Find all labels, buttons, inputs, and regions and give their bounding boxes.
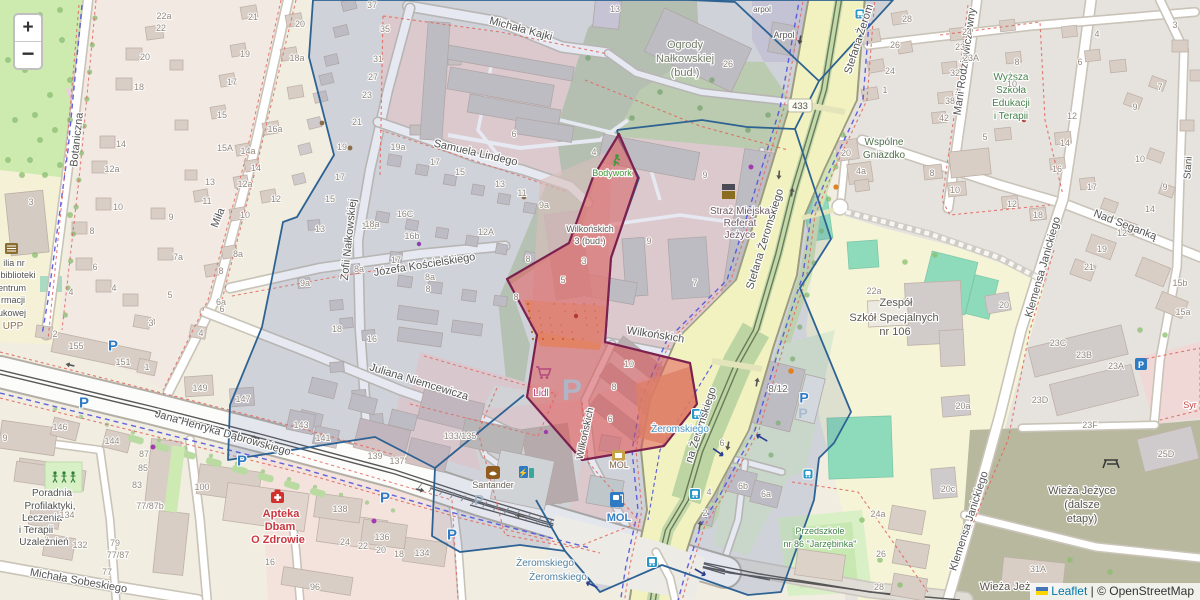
svg-text:UPP: UPP [3, 321, 24, 332]
svg-text:134: 134 [414, 548, 429, 558]
svg-text:15: 15 [325, 194, 335, 204]
svg-text:i Terapii: i Terapii [19, 525, 53, 536]
svg-text:17: 17 [391, 255, 401, 265]
svg-text:15: 15 [217, 110, 227, 120]
svg-text:11: 11 [202, 196, 211, 206]
svg-text:3: 3 [28, 197, 33, 207]
svg-text:16b: 16b [404, 231, 419, 241]
svg-text:32: 32 [950, 68, 960, 78]
svg-text:5: 5 [982, 132, 987, 142]
svg-text:4: 4 [1094, 29, 1099, 39]
svg-text:31A: 31A [1030, 564, 1046, 574]
svg-text:MOL: MOL [607, 512, 632, 524]
svg-text:9a: 9a [539, 200, 549, 210]
svg-text:3: 3 [1172, 20, 1177, 30]
svg-text:Wspólne: Wspólne [865, 137, 904, 148]
svg-text:22a: 22a [866, 286, 881, 296]
svg-text:26: 26 [876, 549, 886, 559]
svg-text:17: 17 [1087, 182, 1097, 192]
svg-text:26: 26 [890, 40, 900, 50]
svg-text:6: 6 [511, 129, 516, 139]
svg-text:Lidl: Lidl [533, 388, 549, 399]
svg-text:Apteka: Apteka [263, 508, 301, 520]
svg-text:85: 85 [138, 463, 148, 473]
svg-text:77: 77 [102, 567, 112, 577]
svg-text:14: 14 [1060, 138, 1070, 148]
svg-text:83: 83 [132, 480, 142, 490]
svg-text:Ogrody: Ogrody [667, 39, 704, 51]
svg-text:22a: 22a [156, 11, 171, 21]
svg-text:10: 10 [1007, 79, 1017, 89]
svg-text:23C: 23C [1050, 338, 1067, 348]
svg-text:22: 22 [358, 541, 368, 551]
svg-text:18: 18 [134, 82, 144, 92]
svg-text:20: 20 [841, 148, 851, 158]
svg-text:9a: 9a [300, 278, 310, 288]
svg-text:8a: 8a [425, 272, 435, 282]
svg-text:Wilkońskich: Wilkońskich [566, 224, 614, 234]
svg-text:Syr: Syr [1183, 400, 1197, 410]
svg-text:26: 26 [723, 59, 733, 69]
svg-text:8: 8 [513, 292, 518, 302]
svg-text:139: 139 [367, 451, 382, 461]
svg-text:9: 9 [1162, 182, 1167, 192]
svg-text:23F: 23F [1082, 420, 1098, 430]
svg-text:Straż Miejska: Straż Miejska [710, 206, 770, 217]
svg-text:P: P [79, 395, 89, 412]
svg-text:20: 20 [140, 52, 150, 62]
svg-text:20a: 20a [955, 401, 970, 411]
svg-text:Zespół: Zespół [879, 297, 913, 309]
svg-text:(dalsze: (dalsze [1064, 499, 1099, 511]
svg-text:8: 8 [425, 284, 430, 294]
svg-text:biblioteki: biblioteki [0, 270, 35, 280]
svg-text:nr 106: nr 106 [879, 326, 910, 338]
svg-text:18a: 18a [364, 219, 379, 229]
svg-text:10: 10 [950, 185, 960, 195]
svg-text:15b: 15b [1172, 278, 1187, 288]
svg-text:77/87b: 77/87b [136, 501, 164, 511]
svg-text:141: 141 [315, 433, 330, 443]
svg-text:15A: 15A [217, 143, 233, 153]
svg-text:13: 13 [205, 177, 215, 187]
svg-text:23B: 23B [1076, 350, 1092, 360]
svg-text:15a: 15a [1175, 307, 1190, 317]
svg-text:12a: 12a [237, 179, 252, 189]
svg-text:143: 143 [293, 420, 308, 430]
svg-text:Leczenia: Leczenia [22, 513, 62, 524]
svg-text:10: 10 [240, 210, 250, 220]
svg-text:Wieża Jeżyce: Wieża Jeżyce [1048, 485, 1116, 497]
svg-text:6b: 6b [738, 481, 748, 491]
svg-text:21: 21 [1084, 262, 1094, 272]
svg-text:134: 134 [59, 510, 74, 520]
svg-text:3: 3 [581, 256, 586, 266]
svg-text:Przedszkole: Przedszkole [795, 526, 844, 536]
svg-text:P: P [1138, 360, 1144, 370]
svg-text:15: 15 [455, 167, 465, 177]
svg-text:Bodywork: Bodywork [592, 168, 632, 178]
svg-text:136: 136 [374, 532, 389, 542]
svg-text:17: 17 [227, 77, 237, 87]
svg-text:6a: 6a [761, 489, 771, 499]
svg-text:21: 21 [248, 12, 258, 22]
svg-text:28: 28 [874, 582, 884, 592]
svg-text:9: 9 [168, 212, 173, 222]
svg-text:16C: 16C [397, 209, 414, 219]
svg-text:⚡: ⚡ [518, 468, 528, 478]
svg-text:151: 151 [115, 357, 130, 367]
svg-text:Santander: Santander [472, 480, 514, 490]
svg-text:146: 146 [52, 422, 67, 432]
svg-text:155: 155 [68, 341, 83, 351]
svg-text:27: 27 [368, 72, 378, 82]
svg-text:P: P [237, 453, 247, 470]
svg-text:38: 38 [945, 96, 955, 106]
svg-text:12: 12 [1067, 111, 1077, 121]
svg-text:138: 138 [332, 504, 347, 514]
svg-text:rmacji: rmacji [1, 295, 25, 305]
svg-text:13: 13 [315, 224, 325, 234]
svg-text:147: 147 [235, 394, 250, 404]
svg-text:19: 19 [240, 49, 250, 59]
svg-text:11: 11 [517, 188, 526, 198]
svg-text:14: 14 [1145, 204, 1155, 214]
svg-text:6: 6 [219, 304, 224, 314]
svg-text:5: 5 [560, 275, 565, 285]
svg-text:18: 18 [332, 324, 342, 334]
svg-text:18: 18 [394, 549, 404, 559]
svg-text:6: 6 [719, 438, 724, 448]
svg-text:ilia nr: ilia nr [3, 258, 25, 268]
svg-text:12A: 12A [478, 227, 494, 237]
svg-text:Żeromskiego: Żeromskiego [516, 556, 574, 569]
svg-text:4: 4 [706, 487, 711, 497]
svg-text:5: 5 [167, 290, 172, 300]
svg-text:8: 8 [1014, 57, 1019, 67]
svg-text:20: 20 [376, 545, 386, 555]
svg-text:18: 18 [1033, 210, 1043, 220]
svg-text:nr 86 "Jarzębinka": nr 86 "Jarzębinka" [784, 539, 857, 549]
svg-text:8a: 8a [354, 264, 364, 274]
svg-text:Uzależnień: Uzależnień [19, 537, 68, 548]
svg-text:Poradnia: Poradnia [32, 488, 72, 499]
svg-text:14: 14 [251, 163, 261, 173]
svg-text:i Terapii: i Terapii [994, 111, 1028, 122]
svg-text:23A: 23A [963, 53, 979, 63]
svg-text:12: 12 [1007, 199, 1017, 209]
svg-text:entrum: entrum [0, 283, 26, 293]
svg-text:4: 4 [111, 283, 116, 293]
svg-text:P: P [798, 405, 807, 421]
svg-text:4: 4 [68, 287, 73, 297]
svg-text:6: 6 [92, 262, 97, 272]
svg-text:4: 4 [198, 328, 203, 338]
svg-text:16: 16 [265, 557, 275, 567]
svg-text:24: 24 [340, 537, 350, 547]
svg-text:1: 1 [144, 362, 149, 372]
svg-text:100: 100 [194, 482, 209, 492]
svg-text:Wieża Jeż: Wieża Jeż [980, 581, 1031, 593]
svg-text:19: 19 [1097, 244, 1107, 254]
svg-text:Nałkowskiej: Nałkowskiej [656, 53, 714, 65]
svg-text:24a: 24a [870, 509, 885, 519]
svg-text:14: 14 [116, 139, 126, 149]
svg-text:Stani: Stani [1182, 156, 1195, 180]
svg-text:132: 132 [72, 540, 87, 550]
svg-text:21: 21 [352, 117, 362, 127]
svg-text:arpol: arpol [753, 5, 771, 14]
svg-text:8a: 8a [233, 249, 243, 259]
svg-text:28: 28 [902, 14, 912, 24]
svg-text:23: 23 [362, 90, 372, 100]
svg-text:P: P [108, 338, 118, 355]
svg-text:87: 87 [139, 449, 149, 459]
svg-text:24: 24 [962, 27, 972, 37]
svg-text:8: 8 [929, 168, 934, 178]
svg-text:22: 22 [156, 23, 166, 33]
svg-text:P: P [474, 492, 484, 509]
svg-text:12: 12 [271, 194, 281, 204]
svg-text:8: 8 [218, 266, 223, 276]
svg-text:P: P [562, 374, 582, 407]
svg-text:12a: 12a [104, 164, 119, 174]
svg-text:Referat: Referat [724, 218, 757, 229]
svg-text:17: 17 [335, 172, 345, 182]
svg-text:149: 149 [192, 383, 207, 393]
svg-text:433: 433 [792, 101, 808, 112]
svg-text:137: 137 [389, 456, 404, 466]
svg-text:13: 13 [495, 179, 505, 189]
svg-text:24: 24 [885, 66, 895, 76]
svg-text:20c: 20c [941, 484, 956, 494]
svg-text:9: 9 [702, 170, 707, 180]
svg-text:10: 10 [624, 359, 634, 369]
svg-text:31: 31 [373, 54, 383, 64]
svg-text:3: 3 [148, 318, 153, 328]
svg-text:9: 9 [646, 236, 651, 246]
svg-text:12: 12 [1117, 228, 1127, 238]
svg-text:25D: 25D [1158, 449, 1175, 459]
svg-text:Żeromskiego: Żeromskiego [529, 570, 587, 583]
svg-text:20: 20 [999, 300, 1009, 310]
svg-text:19a: 19a [390, 142, 405, 152]
svg-text:7: 7 [1157, 82, 1162, 92]
svg-text:8: 8 [611, 382, 616, 392]
svg-text:P: P [380, 490, 390, 507]
svg-text:Żeromskiego: Żeromskiego [651, 422, 709, 435]
svg-text:P: P [799, 389, 808, 405]
svg-text:16: 16 [367, 334, 377, 344]
svg-text:MOL: MOL [609, 460, 629, 470]
svg-text:Jeżyce: Jeżyce [724, 230, 756, 241]
svg-text:16: 16 [1052, 164, 1062, 174]
svg-text:19: 19 [337, 142, 347, 152]
svg-text:35: 35 [380, 24, 390, 34]
svg-text:4a: 4a [856, 166, 866, 176]
svg-text:4: 4 [591, 147, 596, 157]
svg-text:P: P [447, 527, 457, 544]
svg-text:16a: 16a [267, 124, 282, 134]
svg-text:ukowej: ukowej [0, 308, 26, 318]
svg-text:23: 23 [955, 42, 965, 52]
svg-text:(bud.): (bud.) [671, 67, 700, 79]
svg-text:2: 2 [52, 329, 57, 339]
svg-text:20: 20 [295, 19, 305, 29]
svg-text:Gniazdko: Gniazdko [863, 150, 906, 161]
svg-text:6: 6 [607, 414, 612, 424]
svg-text:etapy): etapy) [1067, 513, 1098, 525]
svg-text:8: 8 [525, 254, 530, 264]
svg-text:10: 10 [113, 202, 123, 212]
svg-text:79: 79 [110, 538, 120, 548]
svg-text:7: 7 [692, 278, 697, 288]
svg-text:18a: 18a [289, 53, 304, 63]
svg-text:9: 9 [2, 433, 7, 443]
svg-text:Dbam: Dbam [265, 521, 296, 533]
svg-text:17: 17 [430, 157, 440, 167]
svg-text:Arpol: Arpol [773, 30, 794, 40]
svg-text:13: 13 [610, 4, 620, 14]
svg-text:144: 144 [104, 436, 119, 446]
svg-text:3 (bud.): 3 (bud.) [574, 236, 605, 246]
svg-text:10: 10 [1135, 154, 1145, 164]
svg-text:O Zdrowie: O Zdrowie [251, 534, 305, 546]
svg-text:23D: 23D [1032, 395, 1049, 405]
svg-text:Edukacji: Edukacji [992, 98, 1030, 109]
svg-text:42: 42 [939, 113, 949, 123]
svg-text:8: 8 [89, 226, 94, 236]
svg-text:9: 9 [1132, 102, 1137, 112]
svg-text:6: 6 [1077, 57, 1082, 67]
svg-text:77/87: 77/87 [107, 550, 130, 560]
svg-text:96: 96 [310, 582, 320, 592]
svg-text:14a: 14a [240, 146, 255, 156]
svg-text:133/135: 133/135 [444, 431, 477, 441]
svg-text:8/12: 8/12 [768, 384, 788, 395]
svg-text:1: 1 [882, 85, 887, 95]
svg-text:Szkół Specjalnych: Szkół Specjalnych [849, 312, 938, 324]
svg-text:2: 2 [702, 508, 707, 518]
svg-text:23A: 23A [1108, 361, 1124, 371]
svg-text:7a: 7a [173, 252, 183, 262]
svg-text:37: 37 [367, 0, 377, 10]
